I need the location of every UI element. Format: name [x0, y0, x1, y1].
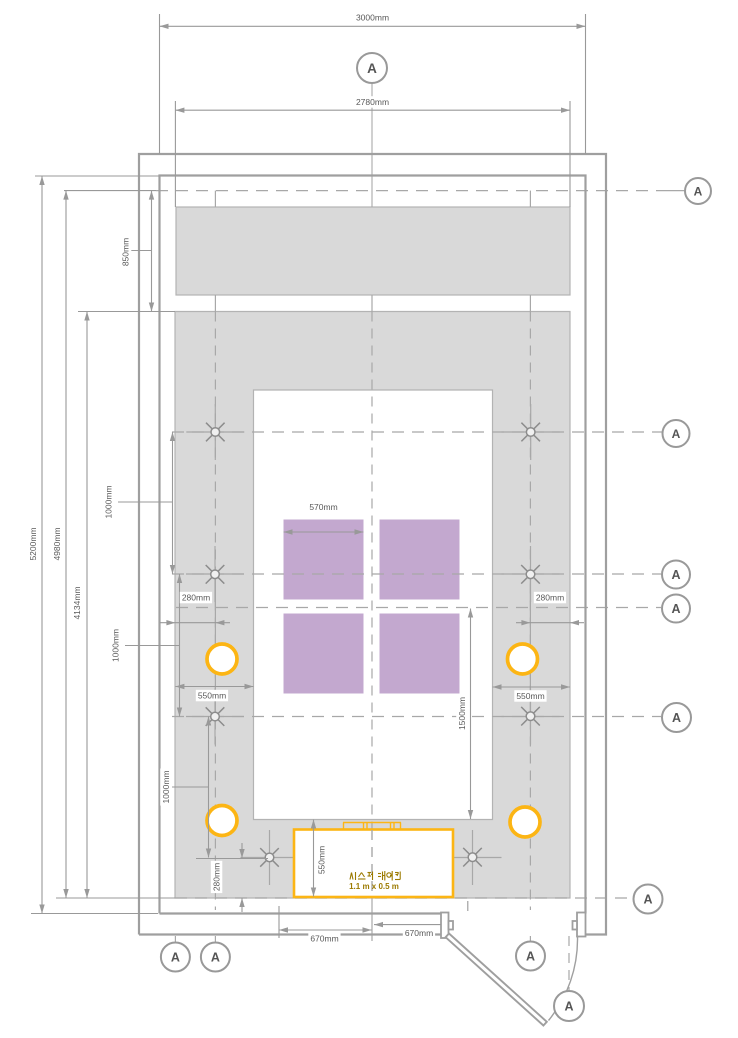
svg-text:670mm: 670mm — [405, 928, 433, 938]
svg-text:5200mm: 5200mm — [28, 527, 38, 560]
svg-text:A: A — [526, 950, 535, 964]
svg-text:A: A — [672, 427, 681, 441]
svg-text:280mm: 280mm — [536, 593, 564, 603]
svg-text:A: A — [672, 711, 681, 725]
svg-text:A: A — [643, 893, 652, 907]
svg-text:1000mm: 1000mm — [104, 485, 114, 518]
svg-text:570mm: 570mm — [309, 502, 337, 512]
svg-text:550mm: 550mm — [516, 691, 544, 701]
svg-text:A: A — [171, 951, 180, 965]
svg-text:4980mm: 4980mm — [52, 527, 62, 560]
svg-text:1000mm: 1000mm — [111, 629, 121, 662]
svg-text:280mm: 280mm — [212, 863, 222, 891]
svg-text:4134mm: 4134mm — [72, 586, 82, 619]
svg-text:280mm: 280mm — [182, 593, 210, 603]
svg-text:1.1 m x 0.5 m: 1.1 m x 0.5 m — [349, 882, 399, 891]
svg-text:A: A — [671, 602, 680, 616]
svg-text:A: A — [671, 568, 680, 582]
svg-text:550mm: 550mm — [198, 691, 226, 701]
svg-text:3000mm: 3000mm — [356, 13, 389, 23]
svg-text:A: A — [211, 951, 220, 965]
svg-text:A: A — [564, 1000, 573, 1014]
svg-text:1000mm: 1000mm — [161, 770, 171, 803]
svg-text:A: A — [694, 185, 703, 199]
svg-text:550mm: 550mm — [317, 846, 327, 874]
svg-text:1500mm: 1500mm — [457, 697, 467, 730]
svg-text:850mm: 850mm — [121, 238, 131, 266]
svg-text:2780mm: 2780mm — [356, 97, 389, 107]
svg-text:670mm: 670mm — [310, 934, 338, 944]
svg-text:A: A — [367, 61, 377, 76]
